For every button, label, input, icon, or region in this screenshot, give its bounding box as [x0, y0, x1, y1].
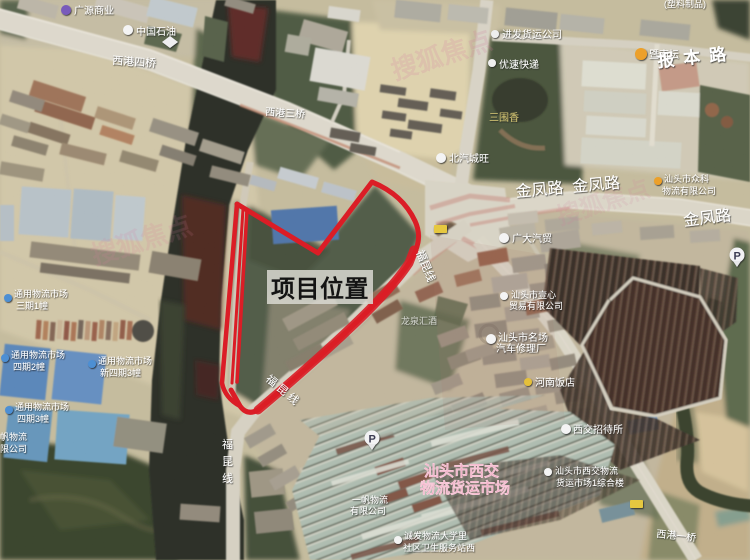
- svg-text:金凤路: 金凤路: [682, 206, 732, 230]
- svg-text:汕头市壹心: 汕头市壹心: [511, 289, 556, 300]
- svg-text:广大汽贸: 广大汽贸: [512, 232, 552, 245]
- svg-text:广源商业: 广源商业: [74, 4, 114, 17]
- svg-text:龙泉汇酒: 龙泉汇酒: [401, 315, 437, 326]
- svg-text:汕头市名场: 汕头市名场: [498, 331, 548, 344]
- svg-text:帆物流: 帆物流: [0, 431, 27, 442]
- svg-text:汕头市众科: 汕头市众科: [664, 173, 709, 184]
- svg-text:进发货运公司: 进发货运公司: [502, 28, 562, 41]
- svg-text:汽车修理厂: 汽车修理厂: [496, 342, 546, 355]
- svg-text:限公司: 限公司: [0, 444, 27, 454]
- svg-text:社区卫生服务站西: 社区卫生服务站西: [403, 542, 475, 553]
- svg-text:通用物流市场: 通用物流市场: [15, 401, 69, 412]
- svg-text:西港三桥: 西港三桥: [265, 106, 306, 121]
- svg-text:北汽城旺: 北汽城旺: [449, 152, 489, 165]
- svg-text:汕头市西交: 汕头市西交: [424, 462, 499, 480]
- svg-text:P: P: [369, 434, 376, 446]
- svg-text:贸易有限公司: 贸易有限公司: [509, 300, 563, 311]
- svg-text:西港一桥: 西港一桥: [656, 528, 697, 544]
- svg-text:福: 福: [222, 437, 233, 451]
- svg-text:四期2幢: 四期2幢: [13, 361, 45, 372]
- svg-text:一帆物流: 一帆物流: [352, 494, 388, 505]
- svg-text:有限公司: 有限公司: [350, 505, 386, 516]
- svg-text:(塑料制品): (塑料制品): [664, 0, 706, 9]
- svg-text:通用物流市场: 通用物流市场: [14, 288, 68, 299]
- svg-text:四期3幢: 四期3幢: [17, 413, 49, 424]
- svg-text:金凤路 金凤路: 金凤路 金凤路: [515, 174, 621, 201]
- svg-text:优速快递: 优速快递: [499, 58, 539, 71]
- svg-text:诚发物流大学里: 诚发物流大学里: [404, 530, 467, 541]
- svg-text:货运市场1综合楼: 货运市场1综合楼: [556, 477, 624, 488]
- svg-text:汕头市西交物流: 汕头市西交物流: [555, 465, 618, 476]
- svg-text:报本路: 报本路: [656, 43, 736, 71]
- svg-text:福昆线: 福昆线: [413, 248, 438, 284]
- svg-text:三期1幢: 三期1幢: [16, 300, 48, 311]
- svg-text:物流货运市场: 物流货运市场: [420, 479, 510, 497]
- svg-text:P: P: [734, 251, 741, 263]
- svg-text:通用物流市场: 通用物流市场: [98, 355, 152, 366]
- svg-text:昆: 昆: [222, 455, 233, 468]
- svg-text:物流有限公司: 物流有限公司: [662, 185, 716, 196]
- svg-text:西交招待所: 西交招待所: [573, 423, 623, 436]
- svg-text:通用物流市场: 通用物流市场: [11, 349, 65, 360]
- svg-text:三围香: 三围香: [489, 112, 519, 124]
- svg-text:西港四桥: 西港四桥: [112, 54, 157, 70]
- svg-text:新四期3幢: 新四期3幢: [100, 367, 141, 378]
- svg-text:福 昆 线: 福 昆 线: [263, 372, 302, 408]
- svg-text:线: 线: [222, 471, 233, 485]
- svg-text:河南饭店: 河南饭店: [535, 376, 575, 389]
- svg-text:项目位置: 项目位置: [271, 275, 369, 303]
